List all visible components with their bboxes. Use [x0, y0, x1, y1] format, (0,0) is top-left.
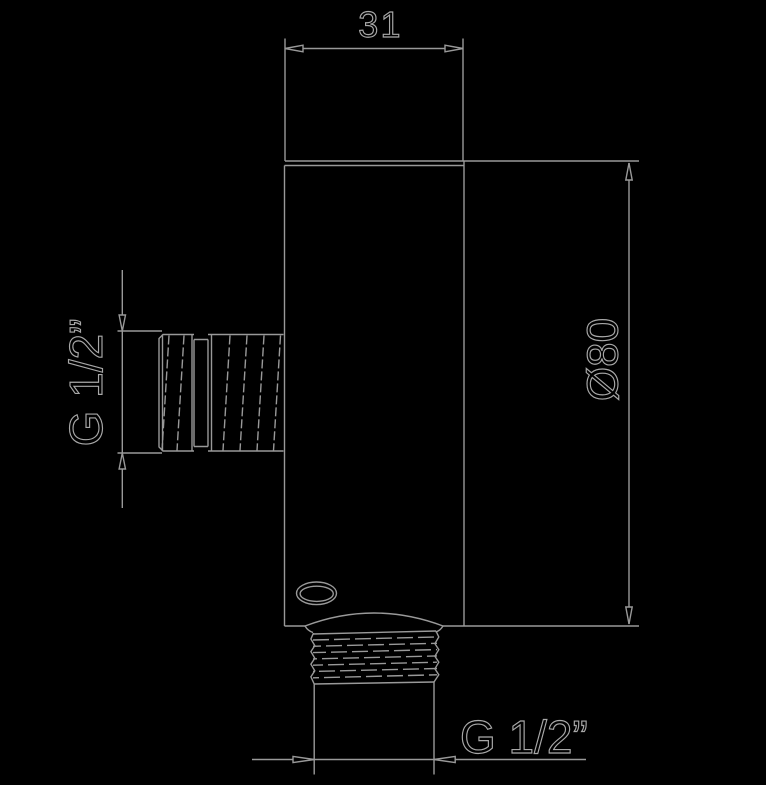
svg-text:Ø80: Ø80 — [579, 318, 628, 401]
svg-text:G 1/2”: G 1/2” — [460, 711, 588, 763]
svg-text:31: 31 — [358, 4, 402, 45]
svg-text:G 1/2”: G 1/2” — [60, 319, 112, 447]
